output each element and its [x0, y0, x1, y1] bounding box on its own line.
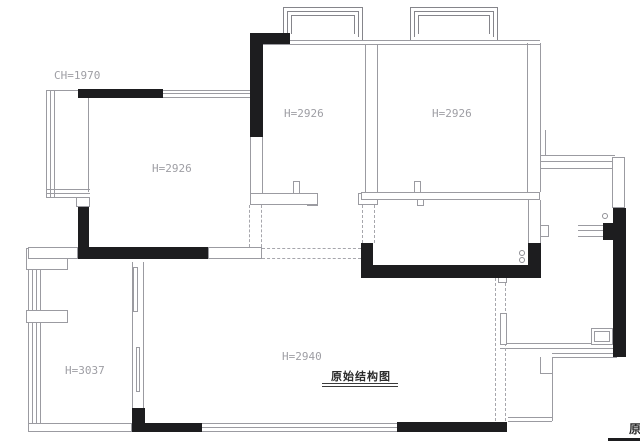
bay-window-2-inner — [418, 15, 490, 34]
wall-step-v2 — [540, 357, 541, 373]
wall-divider-a — [365, 44, 366, 193]
bay-left-v1 — [46, 90, 47, 197]
dashed-bed2-left-a — [249, 205, 250, 247]
window-bottom-a — [202, 423, 397, 424]
pier-right-side — [540, 225, 549, 237]
door-panel-upper — [133, 267, 138, 312]
wall-top-band-b — [263, 44, 540, 45]
door-panel-lower — [136, 347, 140, 392]
bay-left-bottom-a — [46, 189, 90, 190]
wall-left-inner — [32, 258, 33, 423]
wall-right-side-outline — [612, 157, 625, 208]
wall-living-bottom — [78, 247, 208, 259]
fixture-left-lower — [26, 310, 68, 323]
wall-step-outer-b — [552, 357, 617, 358]
height-label: H=2940 — [282, 350, 322, 363]
clipped-drawing-title: 原 — [629, 420, 640, 437]
wall-left-dbl-b — [40, 270, 41, 423]
height-label: H=3037 — [65, 364, 105, 377]
door-jamb-dining — [500, 313, 507, 345]
wall-right-corner — [603, 223, 615, 240]
bay-left-v2 — [50, 90, 51, 197]
floor-plan: 原始结构图 原 CH=1970H=2926H=2926H=2926H=3037H… — [0, 0, 640, 447]
wall-step-bottom-b — [508, 421, 552, 422]
wall-bed2-left — [250, 33, 263, 137]
wall-bed3-bottom — [361, 192, 540, 200]
clipped-title-underline — [608, 438, 640, 441]
wall-top-band-a — [263, 40, 540, 41]
bay-left-bottom-b — [46, 193, 90, 194]
wall-interior-b — [143, 262, 144, 420]
dashed-hall-a — [362, 205, 363, 243]
wall-right-stub — [545, 130, 546, 155]
wall-step-b — [500, 348, 613, 349]
wall-left-outer — [28, 248, 29, 432]
wall-kitchen-bottom — [361, 265, 541, 278]
height-label: H=2926 — [432, 107, 472, 120]
window-right-band-c — [540, 168, 615, 169]
window-right-band-a — [540, 155, 615, 156]
bay-window-1-inner — [291, 15, 355, 34]
wall-segment-left — [76, 197, 90, 207]
wall-step-outer-a — [552, 353, 617, 354]
height-label: H=2926 — [284, 107, 324, 120]
window-right-band-b — [540, 161, 615, 162]
dashed-hall-b — [374, 205, 375, 243]
dashed-dining-right-a — [495, 278, 496, 421]
wall-bed2-bottom — [250, 193, 318, 205]
height-label: H=2926 — [152, 162, 192, 175]
window-living-top-b — [163, 93, 250, 94]
wall-step-tick — [540, 373, 552, 374]
pipe-circle — [519, 250, 525, 256]
drawing-title: 原始结构图 — [331, 368, 391, 384]
window-living-top-a — [163, 90, 250, 91]
wall-left-top-outline — [28, 247, 78, 259]
dashed-dining-right-b — [505, 278, 506, 421]
dashed-corridor-b — [262, 258, 361, 259]
wall-bed3-right-a — [527, 43, 528, 192]
entry-door-leaf-inner — [594, 331, 610, 342]
wall-top-left — [78, 89, 163, 98]
window-bottom-b — [202, 427, 397, 428]
wall-kitchen-upper-a — [528, 200, 529, 243]
title-underline — [322, 383, 398, 387]
bay-left-v3 — [54, 90, 55, 197]
pipe-circle — [602, 213, 608, 219]
wall-divider-b — [377, 44, 378, 193]
opening-living-bottom — [208, 247, 262, 259]
wall-left-dbl-a — [36, 270, 37, 423]
dashed-corridor-a — [262, 248, 361, 249]
wall-step-bottom-a — [508, 417, 552, 418]
wall-living-left-edge — [88, 98, 89, 192]
wall-bottom-right — [397, 422, 507, 432]
dashed-bed2-left-b — [261, 205, 262, 247]
height-label: CH=1970 — [54, 69, 100, 82]
pipe-circle — [519, 257, 525, 263]
wall-kitchen-right — [528, 243, 541, 278]
window-living-top-c — [163, 97, 250, 98]
wall-bottom-left-outline — [28, 423, 132, 432]
wall-step-v — [552, 357, 553, 421]
wall-bed3-right-b — [540, 43, 541, 192]
window-bottom-c — [202, 431, 397, 432]
wall-bottom-left — [132, 423, 202, 432]
